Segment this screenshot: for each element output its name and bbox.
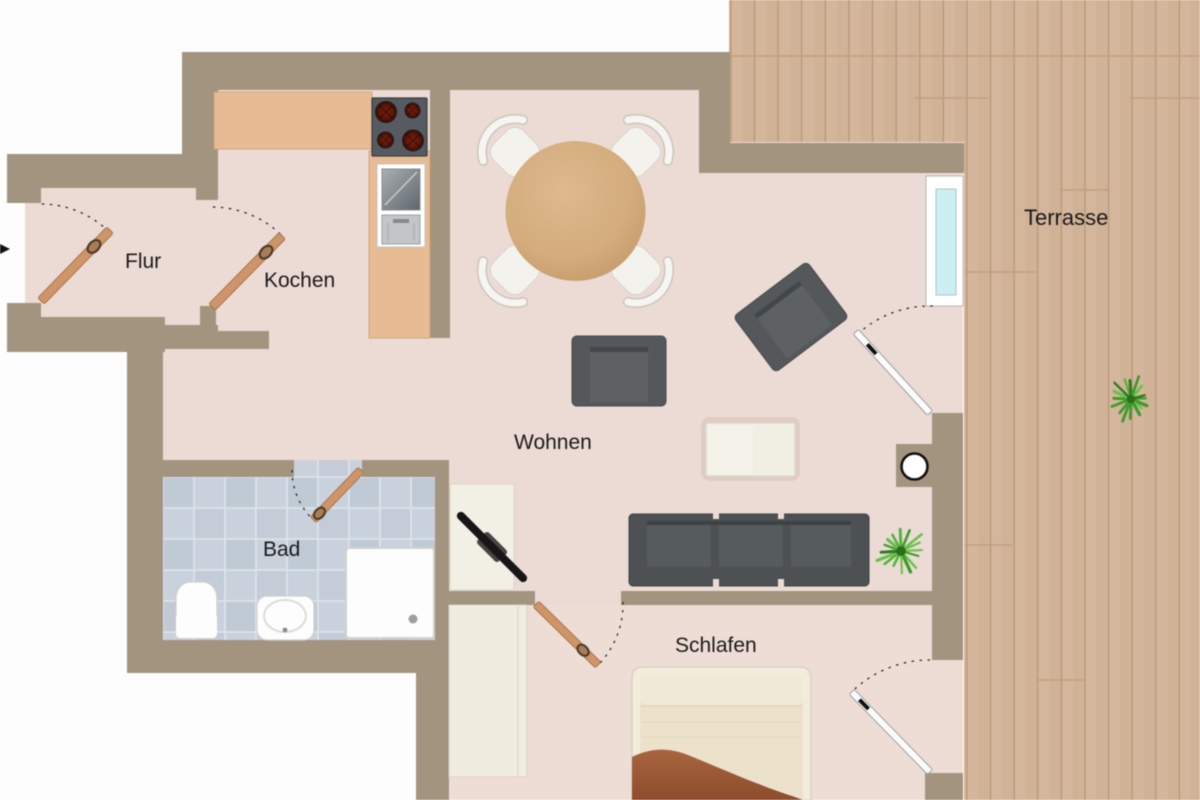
svg-text:Bad: Bad (263, 538, 300, 561)
svg-text:Schlafen: Schlafen (675, 634, 757, 657)
svg-text:Kochen: Kochen (264, 269, 335, 292)
svg-text:Terrasse: Terrasse (1024, 205, 1108, 230)
svg-text:Flur: Flur (125, 250, 161, 273)
svg-text:Wohnen: Wohnen (514, 431, 592, 454)
